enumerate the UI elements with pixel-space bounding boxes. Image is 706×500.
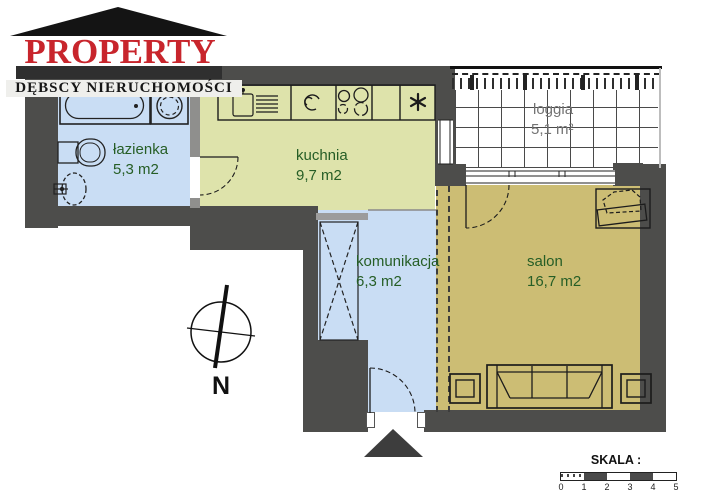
scale-tick: 3 xyxy=(620,482,640,492)
room-area: 9,7 m2 xyxy=(296,166,348,186)
agency-logo: PROPERTY DĘBSCY NIERUCHOMOŚCI xyxy=(0,0,246,100)
entrance-arrow-icon xyxy=(364,429,423,457)
scale-tick: 5 xyxy=(666,482,686,492)
toilet-icon xyxy=(58,139,105,166)
scale-ruler xyxy=(560,472,677,481)
agency-subtitle: DĘBSCY NIERUCHOMOŚCI xyxy=(6,80,242,97)
logo-bar xyxy=(16,66,222,79)
compass-north-label: N xyxy=(212,372,230,400)
scale-bar: SKALA : 0 1 2 3 4 5 xyxy=(552,453,702,498)
kitchen-window-frame xyxy=(438,120,453,164)
room-name: loggia xyxy=(531,100,574,120)
entrance-door xyxy=(370,368,415,413)
side-table-right-icon xyxy=(621,374,651,403)
room-name: kuchnia xyxy=(296,146,348,166)
scale-tick: 0 xyxy=(551,482,571,492)
side-table-left-icon xyxy=(450,374,480,403)
scale-tick: 1 xyxy=(574,482,594,492)
balcony-door xyxy=(466,185,509,228)
armchair-icon xyxy=(596,189,650,228)
kitchen-counter xyxy=(218,85,435,120)
bathroom-door xyxy=(200,157,238,195)
room-area: 5,1 m² xyxy=(531,120,574,140)
balcony-window-frame xyxy=(466,171,615,183)
room-area: 16,7 m2 xyxy=(527,272,581,292)
room-label-loggia: loggia 5,1 m² xyxy=(531,100,574,140)
room-label-livingroom: salon 16,7 m2 xyxy=(527,252,581,292)
hob-burners-icon xyxy=(339,88,369,116)
scale-segment xyxy=(607,473,630,480)
room-label-hallway: komunikacja 6,3 m2 xyxy=(356,252,439,292)
sink-icon xyxy=(54,173,86,205)
fridge-asterisk-icon xyxy=(411,94,425,110)
room-name: salon xyxy=(527,252,581,272)
floor-plan-page: N łazienka 5,3 m2 kuchnia 9,7 m2 komunik… xyxy=(0,0,706,500)
room-label-bathroom: łazienka 5,3 m2 xyxy=(113,140,168,180)
scale-segment xyxy=(653,473,676,480)
scale-segment xyxy=(584,473,607,480)
scale-segment xyxy=(561,473,584,480)
scale-segment xyxy=(630,473,653,480)
room-name: komunikacja xyxy=(356,252,439,272)
wardrobe-icon xyxy=(320,222,358,340)
room-name: łazienka xyxy=(113,140,168,160)
room-area: 6,3 m2 xyxy=(356,272,439,292)
extractor-spiral-icon xyxy=(305,95,319,110)
scale-tick: 2 xyxy=(597,482,617,492)
compass-icon xyxy=(187,285,255,368)
scale-title: SKALA : xyxy=(552,453,680,467)
scale-tick: 4 xyxy=(643,482,663,492)
sofa-icon xyxy=(487,365,612,408)
room-area: 5,3 m2 xyxy=(113,160,168,180)
room-label-kitchen: kuchnia 9,7 m2 xyxy=(296,146,348,186)
